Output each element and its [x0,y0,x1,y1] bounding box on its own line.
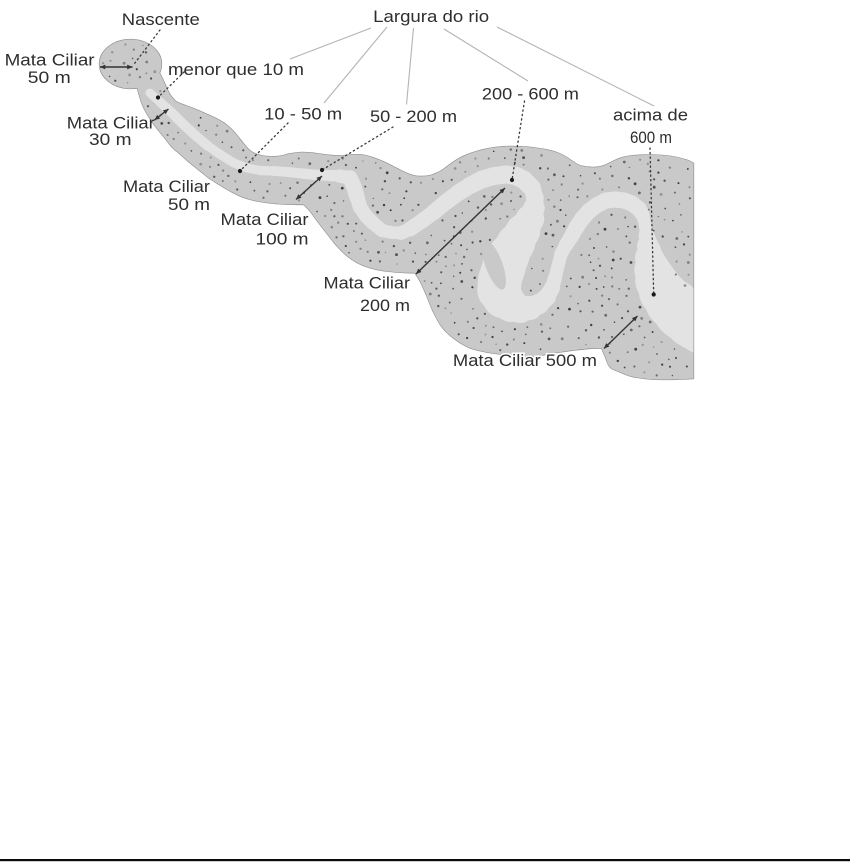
svg-text:Nascente: Nascente [122,10,200,29]
svg-text:30 m: 30 m [89,130,132,149]
svg-text:100 m: 100 m [256,230,309,249]
svg-text:Largura do rio: Largura do rio [373,7,489,26]
svg-text:Mata Ciliar: Mata Ciliar [221,210,309,229]
svg-text:Mata Ciliar: Mata Ciliar [123,177,210,196]
svg-text:menor que 10 m: menor que 10 m [168,60,304,79]
svg-text:acima de: acima de [613,106,688,125]
svg-text:50 m: 50 m [28,68,71,87]
svg-text:200 - 600 m: 200 - 600 m [482,85,579,104]
svg-text:600 m: 600 m [630,128,672,147]
svg-text:50 - 200 m: 50 - 200 m [370,107,457,126]
svg-text:Mata Ciliar: Mata Ciliar [324,274,411,293]
svg-text:10 - 50 m: 10 - 50 m [264,105,342,124]
svg-text:Mata Ciliar 500 m: Mata Ciliar 500 m [453,351,597,370]
svg-text:Mata Ciliar: Mata Ciliar [5,51,95,70]
svg-text:50 m: 50 m [168,195,210,214]
svg-text:200 m: 200 m [360,296,410,315]
